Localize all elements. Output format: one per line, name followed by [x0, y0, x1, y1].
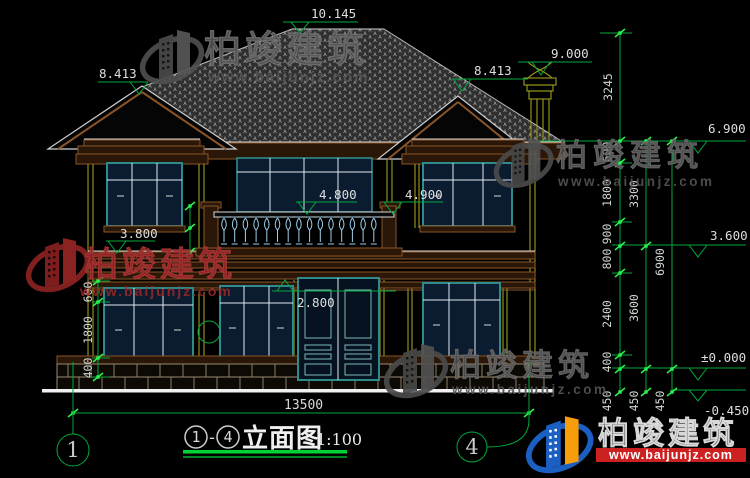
level-site: -0.450: [672, 390, 749, 418]
svg-text:1800: 1800: [81, 316, 95, 344]
svg-text:柏竣建筑: 柏竣建筑: [204, 28, 368, 70]
title-scale: 1:100: [316, 430, 362, 449]
svg-text:450: 450: [653, 391, 667, 412]
svg-text:450: 450: [627, 391, 641, 412]
brand-logo-url: www.baijunjz.com: [608, 448, 733, 462]
overall-dimension: 13500: [68, 398, 534, 417]
svg-text:柏竣建筑: 柏竣建筑: [556, 138, 704, 173]
watermark-top-right: 柏竣建筑 www.baijunjz.com: [490, 138, 714, 194]
svg-text:www.baijunjz.com: www.baijunjz.com: [207, 69, 369, 86]
level-belt: 3.600: [612, 228, 748, 257]
level-chimney: 9.000: [518, 46, 592, 75]
svg-text:4.900: 4.900: [405, 187, 443, 202]
right-dimension-chains: 3245 600 1800 900 800 2400 400 450 3300 …: [600, 29, 677, 411]
svg-text:3245: 3245: [601, 73, 615, 101]
svg-text:900: 900: [600, 224, 614, 245]
svg-text:4: 4: [465, 435, 478, 459]
balusters: [221, 217, 377, 244]
svg-text:8.413: 8.413: [99, 66, 137, 81]
svg-text:柏竣建筑: 柏竣建筑: [84, 245, 236, 284]
watermark-left: 柏竣建筑 www.baijunjz.com: [22, 238, 236, 299]
elevation-drawing: 10.145 8.413 8.413 9.000 6.900 3.600 ±0.…: [0, 0, 750, 478]
svg-text:-: -: [207, 428, 217, 448]
svg-text:6900: 6900: [653, 248, 667, 276]
svg-text:400: 400: [600, 352, 614, 373]
svg-text:3600: 3600: [627, 294, 641, 322]
svg-text:1: 1: [66, 438, 79, 462]
drawing-title: 1 - 4 立面图 1:100: [183, 423, 362, 457]
cad-canvas: 10.145 8.413 8.413 9.000 6.900 3.600 ±0.…: [0, 0, 750, 478]
svg-text:6.900: 6.900: [708, 121, 746, 136]
svg-text:3.600: 3.600: [710, 228, 748, 243]
svg-text:2.800: 2.800: [297, 295, 335, 310]
entrance-door: [298, 278, 379, 380]
watermark-bottom-center: 柏竣建筑 www.baijunjz.com: [380, 344, 609, 404]
svg-text:8.413: 8.413: [474, 63, 512, 78]
svg-text:9.000: 9.000: [551, 46, 589, 61]
svg-text:±0.000: ±0.000: [701, 350, 746, 365]
svg-text:2400: 2400: [600, 300, 614, 328]
svg-text:10.145: 10.145: [311, 6, 356, 21]
brand-logo-text: 柏竣建筑: [598, 416, 738, 451]
level-ground: ±0.000: [612, 350, 746, 380]
svg-text:柏竣建筑: 柏竣建筑: [450, 348, 594, 383]
svg-text:13500: 13500: [284, 398, 323, 413]
svg-text:www.baijunjz.com: www.baijunjz.com: [557, 174, 715, 189]
left-window-cornice: [76, 139, 208, 164]
svg-text:www.baijunjz.com: www.baijunjz.com: [451, 382, 609, 397]
svg-text:4.800: 4.800: [319, 187, 357, 202]
svg-text:www.baijunjz.com: www.baijunjz.com: [79, 283, 233, 299]
svg-text:400: 400: [81, 358, 95, 379]
second-floor-left-window: [104, 163, 185, 232]
watermark-top-center: 柏竣建筑 www.baijunjz.com: [136, 28, 370, 90]
balcony-french-window: [237, 158, 372, 212]
brand-logo: 柏竣建筑 www.baijunjz.com: [522, 416, 746, 478]
detail-circle-marker: [198, 321, 220, 343]
svg-text:1: 1: [191, 428, 200, 446]
svg-text:3.800: 3.800: [120, 226, 158, 241]
svg-text:800: 800: [600, 249, 614, 270]
title-text: 立面图: [242, 423, 323, 453]
svg-text:4: 4: [223, 428, 232, 446]
